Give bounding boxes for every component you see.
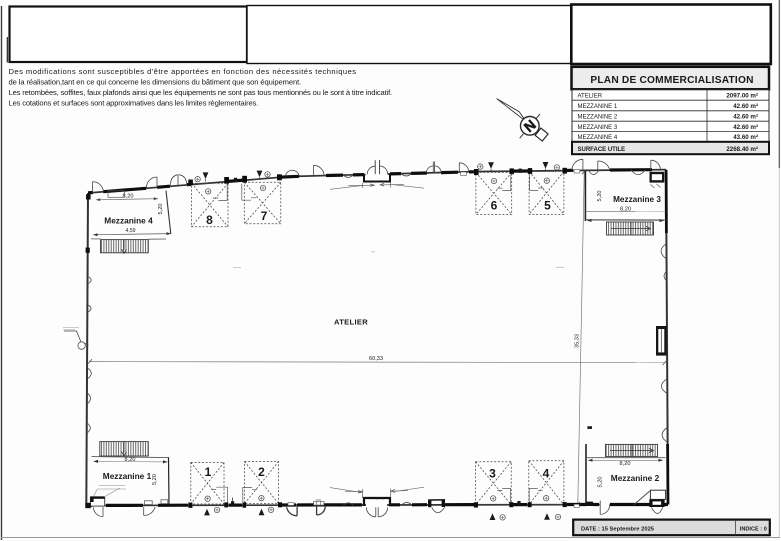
- svg-text:5,20: 5,20: [598, 477, 604, 488]
- svg-text:Mezzanine 2: Mezzanine 2: [611, 473, 660, 483]
- svg-text:Des modifications sont suscept: Des modifications sont susceptibles d'êt…: [9, 67, 357, 76]
- svg-text:7: 7: [261, 209, 268, 223]
- svg-text:2097.00 m²: 2097.00 m²: [726, 93, 758, 100]
- svg-text:MEZZANINE 4: MEZZANINE 4: [578, 135, 618, 141]
- svg-text:Mezzanine 3: Mezzanine 3: [613, 195, 661, 204]
- svg-text:Les cotations et surfaces sont: Les cotations et surfaces sont approxima…: [9, 98, 259, 107]
- svg-text:8,20: 8,20: [125, 457, 136, 463]
- svg-text:Mezzanine 1: Mezzanine 1: [103, 471, 152, 481]
- svg-text:DATE : 15 Septembre 2025: DATE : 15 Septembre 2025: [581, 526, 655, 532]
- svg-text:42.60 m²: 42.60 m²: [733, 113, 758, 120]
- svg-text:INDICE : 0: INDICE : 0: [740, 526, 767, 532]
- svg-text:2268.40 m²: 2268.40 m²: [726, 146, 758, 153]
- svg-text:MEZZANINE 2: MEZZANINE 2: [578, 114, 618, 120]
- svg-text:4: 4: [543, 467, 550, 481]
- svg-text:8: 8: [206, 213, 213, 227]
- svg-text:42.60 m²: 42.60 m²: [733, 103, 758, 110]
- svg-text:5,20: 5,20: [158, 204, 164, 215]
- svg-text:ATELIER: ATELIER: [578, 94, 603, 100]
- svg-text:4,59: 4,59: [125, 228, 135, 234]
- svg-text:35,33: 35,33: [575, 334, 581, 348]
- svg-text:ATELIER: ATELIER: [334, 317, 368, 326]
- svg-text:42.60 m²: 42.60 m²: [733, 124, 758, 131]
- svg-text:5,20: 5,20: [152, 474, 158, 485]
- svg-text:de la réalisation,tant en ce q: de la réalisation,tant en ce qui concern…: [9, 78, 302, 87]
- svg-text:5: 5: [544, 199, 551, 213]
- svg-text:MEZZANINE 3: MEZZANINE 3: [578, 125, 618, 131]
- svg-text:8,20: 8,20: [620, 461, 631, 467]
- svg-text:Les retombées, soffites, faux: Les retombées, soffites, faux plafonds a…: [9, 88, 393, 97]
- svg-text:60,33: 60,33: [369, 356, 383, 362]
- svg-text:43.60 m²: 43.60 m²: [733, 134, 758, 141]
- svg-text:2: 2: [258, 465, 265, 479]
- svg-text:PLAN DE COMMERCIALISATION: PLAN DE COMMERCIALISATION: [590, 75, 753, 86]
- svg-text:Mezzanine 4: Mezzanine 4: [104, 215, 153, 225]
- svg-text:1: 1: [205, 465, 212, 479]
- svg-text:SURFACE UTILE: SURFACE UTILE: [578, 147, 626, 153]
- svg-text:6: 6: [491, 199, 498, 213]
- svg-text:3: 3: [489, 467, 496, 481]
- svg-text:MEZZANINE 1: MEZZANINE 1: [578, 104, 618, 110]
- svg-text:5,20: 5,20: [597, 191, 603, 202]
